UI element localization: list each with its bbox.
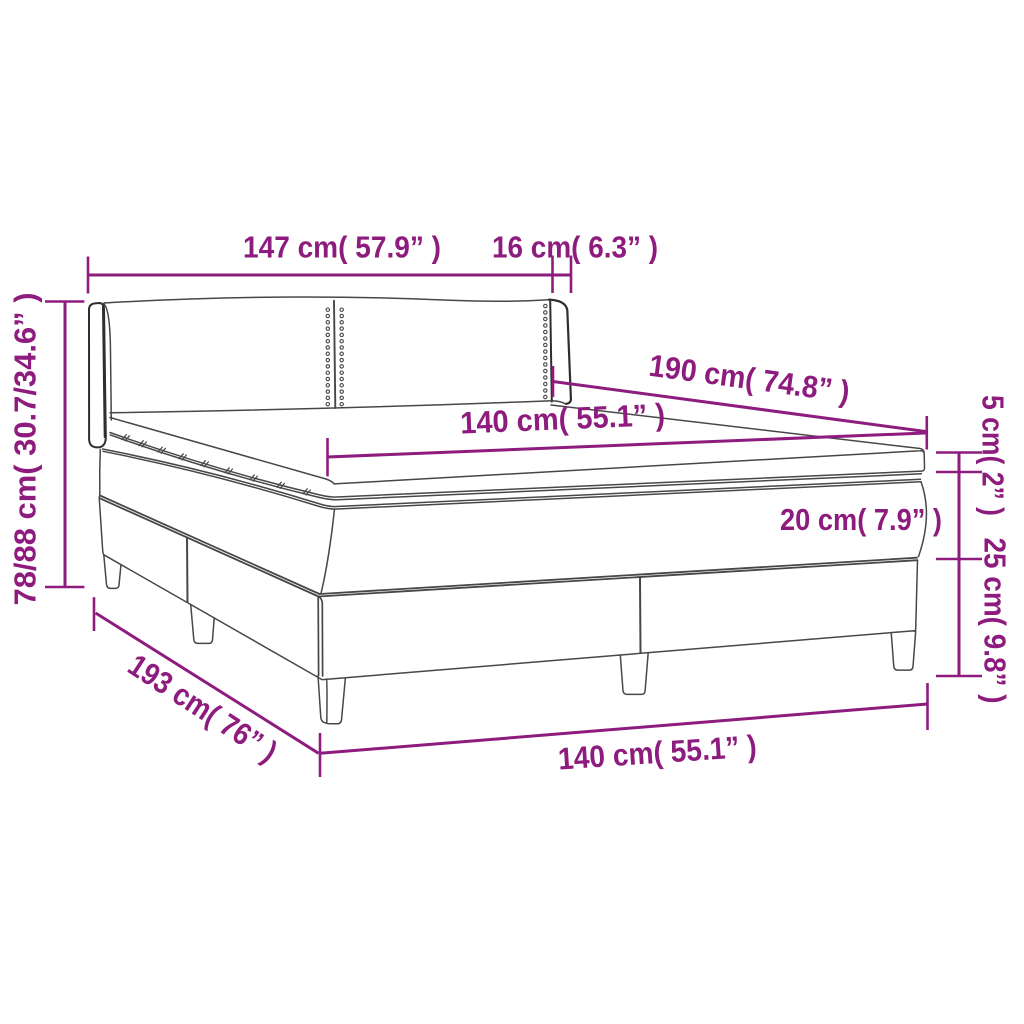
svg-text:25 cm( 9.8” ): 25 cm( 9.8” ) [978, 538, 1013, 704]
svg-text:16 cm( 6.3” ): 16 cm( 6.3” ) [492, 229, 658, 264]
svg-text:20 cm( 7.9” ): 20 cm( 7.9” ) [780, 502, 942, 537]
svg-text:5 cm( 2” ): 5 cm( 2” ) [976, 395, 1011, 516]
svg-text:78/88 cm( 30.7/34.6” ): 78/88 cm( 30.7/34.6” ) [8, 293, 43, 606]
svg-text:147 cm( 57.9” ): 147 cm( 57.9” ) [243, 229, 441, 264]
